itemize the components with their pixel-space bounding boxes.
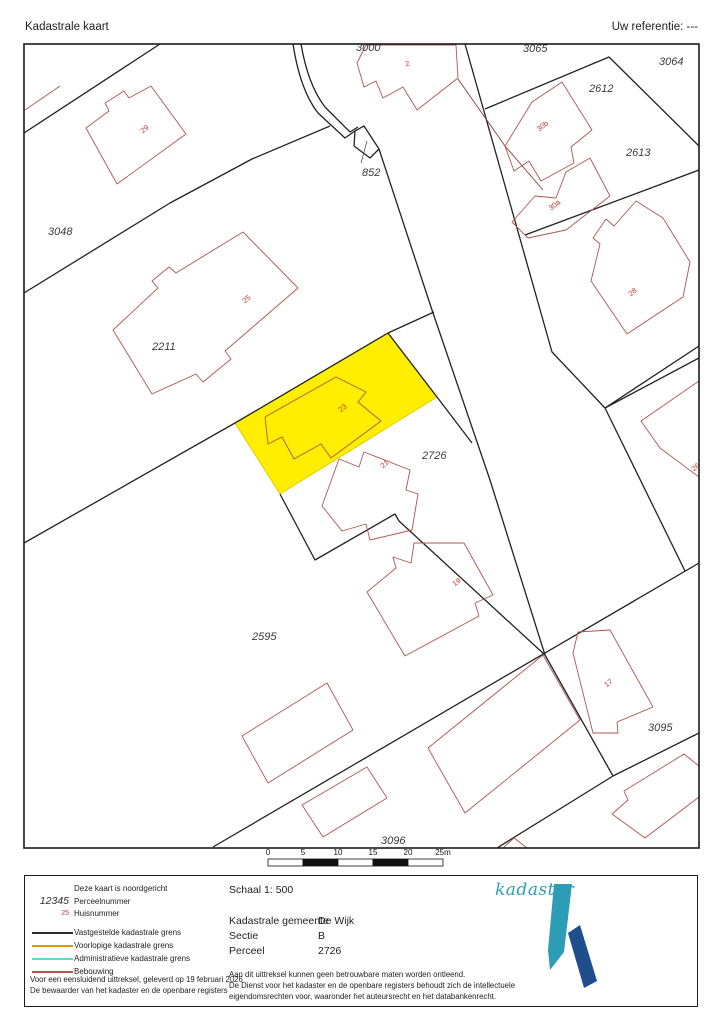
cadastral-boundary-line: [301, 44, 358, 132]
scale-bar-segment: [338, 859, 373, 866]
extract-note-line2: De bewaarder van het kadaster en de open…: [30, 986, 228, 995]
building-outline: [573, 630, 653, 733]
logo-teal-blade: [548, 884, 572, 970]
building-outline: [641, 381, 699, 477]
building-outline: [357, 45, 458, 110]
kadaster-extract-page: Kadastrale kaart Uw referentie: --- 3000…: [0, 0, 724, 1024]
parcel-number-label: 3096: [381, 835, 406, 847]
building-outline: [322, 452, 418, 540]
cadastral-boundary-line: [388, 312, 434, 333]
building-outline: [591, 201, 690, 334]
house-number-label: 29: [138, 123, 150, 135]
parcel-number-label: 2613: [625, 147, 651, 159]
detail-row-label: Perceel: [229, 945, 265, 957]
building-outline: [505, 82, 592, 181]
cadastral-boundary-line: [24, 126, 330, 293]
cadastral-boundary-line: [465, 44, 685, 571]
house-number-label: 17: [602, 677, 614, 689]
parcel-number-label: 3048: [48, 226, 73, 238]
detail-row-value: 2726: [318, 945, 341, 957]
parcel-number-label: 2726: [421, 450, 447, 462]
legend-line-swatch: [32, 932, 73, 934]
scale-bar: 0510152025m: [266, 848, 451, 866]
map-content: 3000306530642612261385230482211272625953…: [24, 42, 702, 848]
legend-line-label: Voorlopige kadastrale grens: [74, 941, 173, 950]
parcel-number-label: Perceelnummer: [74, 897, 130, 906]
map-border: [24, 44, 699, 848]
kadaster-logo-icon: [538, 878, 598, 1003]
cadastral-boundary-line: [293, 44, 355, 138]
disclaimer-line: De Dienst voor het kadaster en de openba…: [229, 981, 515, 990]
legend-line-label: Administratieve kadastrale grens: [74, 954, 190, 963]
disclaimer-line: Aan dit uittreksel kunnen geen betrouwba…: [229, 970, 465, 979]
parcel-number-label: 3064: [659, 56, 683, 68]
scale-tick-label: 25m: [435, 848, 451, 857]
building-outline: [25, 86, 60, 110]
house-number-label: 28: [626, 286, 638, 298]
scale-tick-label: 15: [369, 848, 378, 857]
scale-bar-segment: [373, 859, 408, 866]
building-outline: [86, 86, 186, 184]
parcel-number-label: 2211: [151, 341, 176, 353]
building-outline: [612, 754, 699, 838]
scale-bar-segment: [408, 859, 443, 866]
cadastral-boundary-line: [213, 563, 699, 847]
former-boundary-line: [458, 79, 543, 190]
building-outline: [302, 767, 387, 837]
detail-row-value: De Wijk: [318, 915, 354, 927]
extract-note-line1: Voor een eensluidend uittreksel, gelever…: [30, 975, 243, 984]
cadastral-boundary-line: [613, 733, 699, 776]
legend-line-swatch: [32, 971, 73, 973]
scale-tick-label: 5: [301, 848, 306, 857]
house-number-label: 30a: [547, 197, 563, 212]
cadastral-boundary-line: [605, 346, 699, 408]
disclaimer-line: eigendomsrechten voor, waaronder het aut…: [229, 992, 496, 1001]
building-outline: [367, 543, 493, 656]
scale-tick-label: 0: [266, 848, 271, 857]
cadastral-boundary-line: [605, 358, 699, 408]
legend-line-swatch: [32, 945, 73, 947]
building-outline: [113, 232, 298, 394]
parcel-number-sample: 12345: [33, 895, 69, 907]
scale-bar-segment: [303, 859, 338, 866]
cadastral-boundary-line: [280, 494, 545, 655]
parcel-number-label: 2595: [251, 631, 277, 643]
north-note: Deze kaart is noordgericht: [74, 884, 167, 893]
house-number-sample: 25: [33, 910, 69, 917]
legend-line-label: Vastgestelde kadastrale grens: [74, 928, 181, 937]
detail-row-value: B: [318, 930, 325, 942]
building-outline: [242, 683, 353, 783]
detail-row-label: Kadastrale gemeente: [229, 915, 329, 927]
house-number-label: 2: [404, 59, 410, 69]
cadastral-boundary-line: [485, 57, 699, 146]
cadastral-boundary-line: [24, 44, 160, 133]
scale-bar-segment: [268, 859, 303, 866]
house-number-label: 25: [240, 293, 252, 305]
house-number-label: 30b: [535, 119, 550, 134]
scale-tick-label: 20: [404, 848, 413, 857]
detail-row-label: Sectie: [229, 930, 258, 942]
parcel-number-label: 852: [362, 167, 380, 179]
cadastral-boundary-line: [497, 776, 613, 848]
cadastral-map: 3000306530642612261385230482211272625953…: [0, 0, 724, 872]
parcel-number-label: 2612: [588, 83, 613, 95]
building-outline: [428, 655, 580, 813]
logo-blue-stroke: [568, 925, 597, 988]
house-number-label: 21: [378, 458, 390, 470]
building-outline: [503, 838, 527, 848]
house-number-label: Huisnummer: [74, 909, 119, 918]
scale-label: Schaal 1: 500: [229, 884, 293, 896]
scale-tick-label: 10: [334, 848, 343, 857]
legend-line-swatch: [32, 958, 73, 960]
parcel-number-label: 3095: [648, 722, 673, 734]
